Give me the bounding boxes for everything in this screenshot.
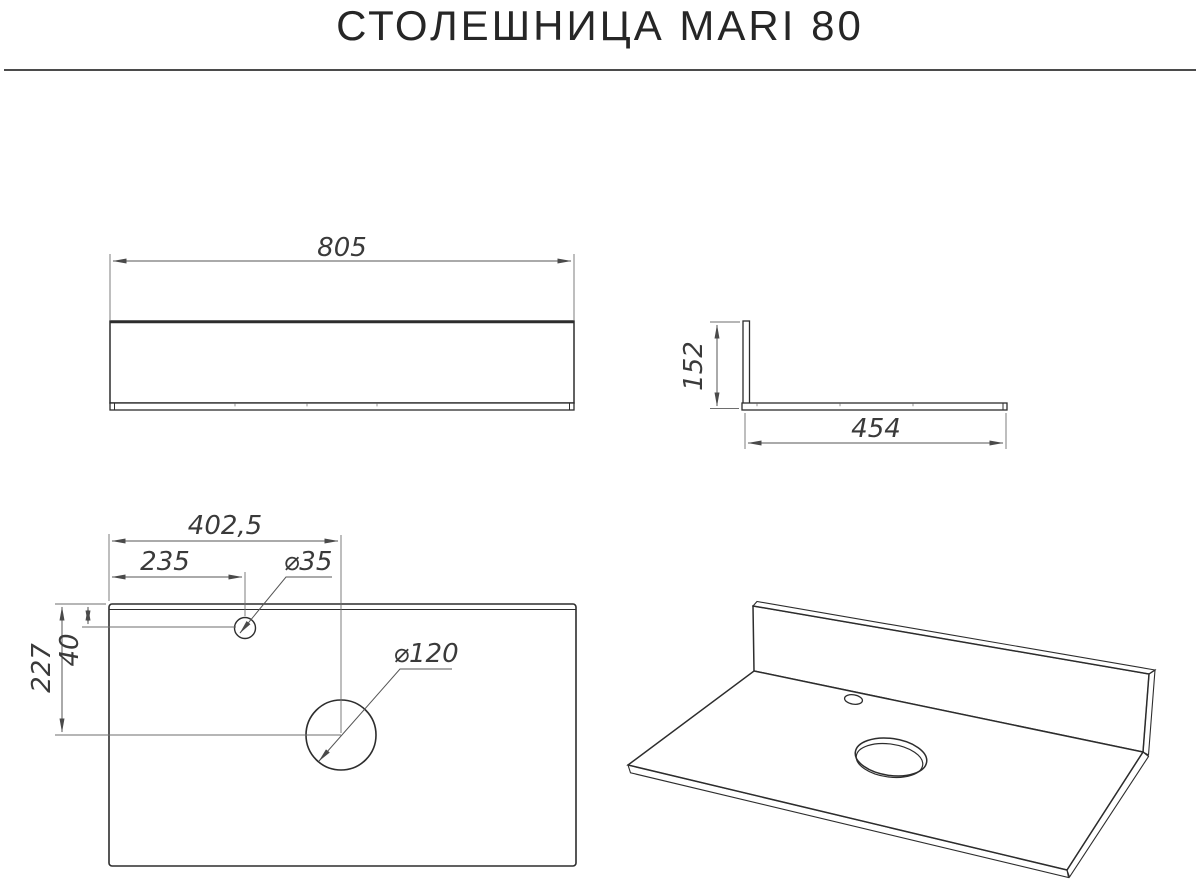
front-width-label: 805: [317, 233, 367, 263]
title-divider: [4, 69, 1196, 71]
faucet-diameter-label: ⌀35: [284, 547, 333, 577]
side-view-outline: [742, 321, 1007, 410]
side-view-dimension-152: 152: [679, 322, 740, 409]
isometric-view: [608, 578, 1198, 879]
drain-offset-x-label: 402,5: [188, 511, 262, 541]
drain-offset-y-label: 227: [27, 643, 57, 693]
front-view: 805: [40, 225, 600, 425]
drain-diameter-label: ⌀120: [393, 639, 458, 669]
front-view-outline: [110, 321, 574, 410]
page-title: СТОЛЕШНИЦА MARI 80: [0, 2, 1200, 50]
side-view: 152 454: [670, 285, 1030, 460]
front-view-dimension-805: 805: [110, 233, 574, 320]
side-view-dimension-454: 454: [745, 413, 1006, 449]
side-height-label: 152: [679, 341, 709, 391]
faucet-offset-y-label: 40: [55, 633, 85, 666]
side-depth-label: 454: [851, 414, 901, 444]
plan-view: 402,5 235 227 40 ⌀35 ⌀120: [30, 515, 610, 879]
faucet-offset-x-label: 235: [140, 547, 190, 577]
faucet-hole: [235, 618, 256, 639]
technical-drawing-page: { "title": "СТОЛЕШНИЦА MARI 80", "front_…: [0, 0, 1200, 879]
